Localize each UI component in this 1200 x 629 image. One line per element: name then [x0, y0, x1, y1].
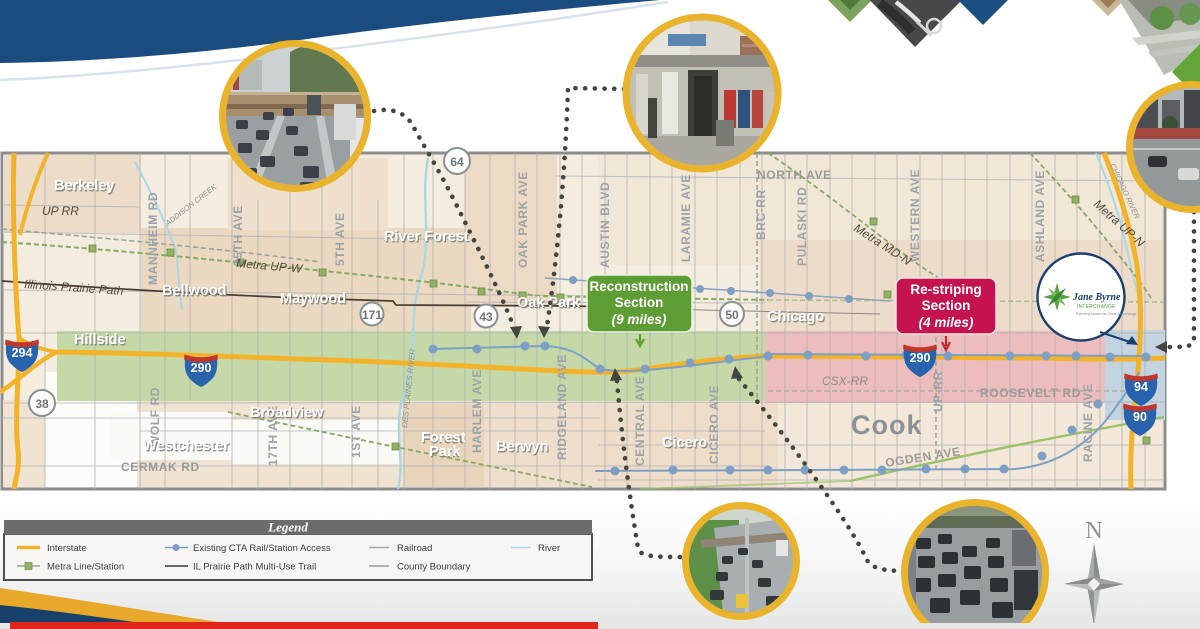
svg-text:Berwyn: Berwyn	[496, 439, 548, 455]
svg-text:50: 50	[725, 308, 739, 322]
svg-text:Formerly known as Circle Inter: Formerly known as Circle Interchange	[1076, 312, 1137, 316]
svg-text:Cicero: Cicero	[662, 435, 707, 451]
svg-text:Legend: Legend	[267, 520, 308, 535]
svg-text:Railroad: Railroad	[397, 543, 432, 554]
svg-text:Chicago: Chicago	[767, 309, 824, 325]
svg-text:64: 64	[450, 155, 464, 169]
svg-text:CICERO AVE: CICERO AVE	[707, 385, 721, 464]
svg-text:Re-striping: Re-striping	[910, 282, 981, 297]
svg-text:CENTRAL AVE: CENTRAL AVE	[633, 376, 647, 466]
svg-text:UP-RR: UP-RR	[931, 371, 945, 412]
svg-text:RACINE AVE: RACINE AVE	[1081, 383, 1095, 462]
svg-text:Cook: Cook	[851, 410, 923, 440]
svg-text:Interstate: Interstate	[47, 543, 87, 554]
svg-text:294: 294	[12, 346, 33, 360]
svg-text:BRC-RR: BRC-RR	[754, 189, 768, 240]
svg-text:WESTERN AVE: WESTERN AVE	[908, 169, 922, 262]
svg-text:Section: Section	[922, 298, 971, 313]
svg-text:ROOSEVELT RD: ROOSEVELT RD	[980, 386, 1081, 400]
svg-text:OAK PARK AVE: OAK PARK AVE	[516, 171, 530, 268]
svg-text:(4 miles): (4 miles)	[919, 315, 974, 330]
svg-text:ASHLAND AVE: ASHLAND AVE	[1033, 170, 1047, 262]
svg-text:Park: Park	[429, 444, 461, 460]
svg-text:RIDGELAND AVE: RIDGELAND AVE	[555, 354, 569, 460]
svg-text:River Forest: River Forest	[384, 229, 469, 245]
svg-text:Hillside: Hillside	[74, 332, 126, 348]
svg-text:CERMAK RD: CERMAK RD	[121, 460, 200, 474]
svg-text:94: 94	[1134, 380, 1148, 394]
svg-text:(9 miles): (9 miles)	[612, 312, 667, 327]
svg-text:171: 171	[362, 308, 382, 322]
svg-text:MANNHEIM RD: MANNHEIM RD	[146, 192, 160, 285]
svg-text:43: 43	[479, 310, 493, 324]
svg-text:IL Prairie Path Multi-Use Trai: IL Prairie Path Multi-Use Trail	[193, 562, 316, 573]
svg-text:Metra Line/Station: Metra Line/Station	[47, 562, 124, 573]
svg-text:AUSTIN BLVD: AUSTIN BLVD	[598, 182, 612, 268]
svg-text:Existing CTA Rail/Station Acce: Existing CTA Rail/Station Access	[193, 543, 331, 554]
svg-text:HARLEM AVE: HARLEM AVE	[470, 369, 484, 453]
svg-text:5TH AVE: 5TH AVE	[333, 212, 347, 266]
svg-text:River: River	[538, 543, 560, 554]
svg-text:LARAMIE AVE: LARAMIE AVE	[679, 174, 693, 262]
svg-text:90: 90	[1133, 410, 1147, 424]
svg-text:Berkeley: Berkeley	[54, 178, 114, 194]
svg-text:NORTH AVE: NORTH AVE	[757, 168, 832, 182]
svg-text:N: N	[1085, 518, 1102, 544]
svg-text:Section: Section	[615, 295, 664, 310]
svg-text:UP RR: UP RR	[42, 204, 79, 218]
svg-text:Reconstruction: Reconstruction	[589, 279, 688, 294]
svg-text:290: 290	[910, 351, 931, 365]
svg-text:PULASKI RD: PULASKI RD	[795, 187, 809, 266]
svg-text:Broadview: Broadview	[250, 405, 324, 421]
svg-text:CSX-RR: CSX-RR	[822, 374, 868, 388]
svg-text:1ST AVE: 1ST AVE	[349, 405, 363, 458]
svg-text:38: 38	[35, 397, 49, 411]
svg-text:County Boundary: County Boundary	[397, 562, 471, 573]
svg-text:290: 290	[191, 361, 212, 375]
svg-text:Westchester: Westchester	[143, 438, 229, 454]
svg-text:Maywood: Maywood	[280, 291, 346, 307]
svg-text:INTERCHANGE: INTERCHANGE	[1077, 304, 1116, 310]
svg-text:Jane Byrne: Jane Byrne	[1072, 292, 1121, 303]
svg-text:Bellwood: Bellwood	[162, 283, 226, 299]
